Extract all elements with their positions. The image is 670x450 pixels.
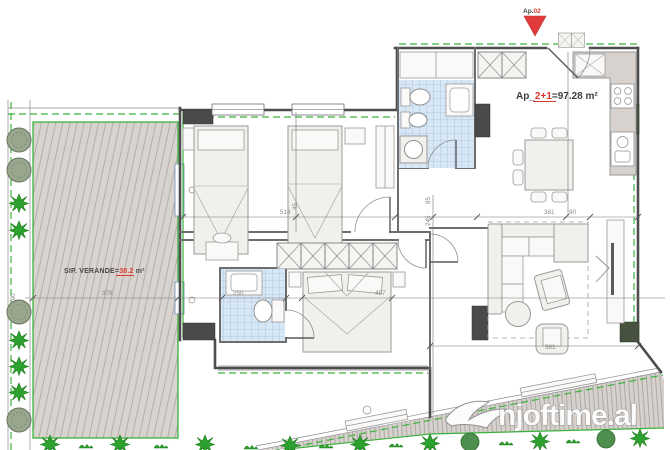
veranda-area: SIP. VERANDE=38.2 m² <box>33 122 195 438</box>
chair <box>513 150 523 165</box>
nightstand <box>345 128 365 144</box>
bush-icon <box>10 194 29 213</box>
sink-icon <box>446 84 473 116</box>
nightstand <box>289 272 301 287</box>
bathroom-main <box>399 52 474 168</box>
dimension-label: 85 <box>425 196 432 204</box>
apartment-area-label: Ap_2+1=97.28 m² <box>516 91 598 102</box>
dimension-label: 381 <box>544 209 555 216</box>
watermark-text: njoftime.al <box>498 399 637 432</box>
living-room <box>488 220 624 354</box>
dimension-label: 381 <box>545 344 556 351</box>
bed-double <box>303 272 391 352</box>
kitchen <box>573 52 636 175</box>
toilet-icon <box>254 300 284 322</box>
nightstand <box>393 272 405 287</box>
entry-wardrobe <box>502 52 526 78</box>
entry-wardrobe <box>478 52 502 78</box>
bath-cabinet <box>400 52 473 78</box>
bush-icon <box>10 331 29 350</box>
armchair <box>534 269 570 311</box>
dimension-label: 90 <box>569 209 577 216</box>
pillow <box>292 130 338 150</box>
desk <box>206 242 238 260</box>
apartment-marker: Ap.02 <box>523 8 546 36</box>
chair <box>552 192 567 202</box>
dimension-label: 190 <box>10 293 17 304</box>
veranda-area-label: SIP. VERANDE=38.2 m² <box>64 268 145 275</box>
bedroom-double-door <box>398 240 426 268</box>
tv-panel <box>596 220 624 323</box>
chair <box>531 128 546 138</box>
pillow <box>307 275 342 294</box>
dimension-label: 518 <box>280 209 291 216</box>
bush-icon <box>10 383 29 402</box>
floor-plan-drawing: SIP. VERANDE=38.2 m² <box>0 0 670 450</box>
entry-hall <box>478 33 585 78</box>
washing-machine-icon <box>400 136 427 163</box>
nightstand <box>183 128 194 150</box>
dimension-label: 378 <box>102 290 113 297</box>
coffee-table <box>506 302 531 327</box>
chair <box>552 128 567 138</box>
bathroom-small <box>221 269 285 341</box>
kitchen-sink-icon <box>611 132 634 166</box>
tree-icon <box>7 408 31 432</box>
wardrobe <box>277 243 397 269</box>
apartment-marker-label: Ap.02 <box>523 8 541 15</box>
tree-icon <box>7 158 31 182</box>
floor-plan-page: SIP. VERANDE=38.2 m² <box>0 0 670 450</box>
dimension-label: 45 <box>292 202 299 210</box>
bush-icon <box>10 357 29 376</box>
bidet-icon <box>401 112 427 128</box>
dimension-label: 245 <box>425 215 432 226</box>
dimension-label: 457 <box>375 290 386 297</box>
chair <box>531 192 546 202</box>
dimension-label: 250 <box>233 290 244 297</box>
chair <box>513 170 523 185</box>
living-door <box>430 234 458 262</box>
dining-table <box>525 140 573 190</box>
stove-icon <box>611 84 634 108</box>
svg-text:Ap_2+1=97.28 m²: Ap_2+1=97.28 m² <box>516 91 598 102</box>
sofa <box>488 224 588 314</box>
bush-icon <box>10 221 29 240</box>
toilet-icon <box>401 88 430 106</box>
tree-icon <box>7 128 31 152</box>
desk-chair <box>213 233 231 243</box>
tv-icon <box>611 243 614 295</box>
dining-area <box>513 128 573 202</box>
pillow <box>198 130 244 150</box>
location-arrow-icon <box>524 16 546 36</box>
bedroom-twin-door <box>355 197 390 232</box>
